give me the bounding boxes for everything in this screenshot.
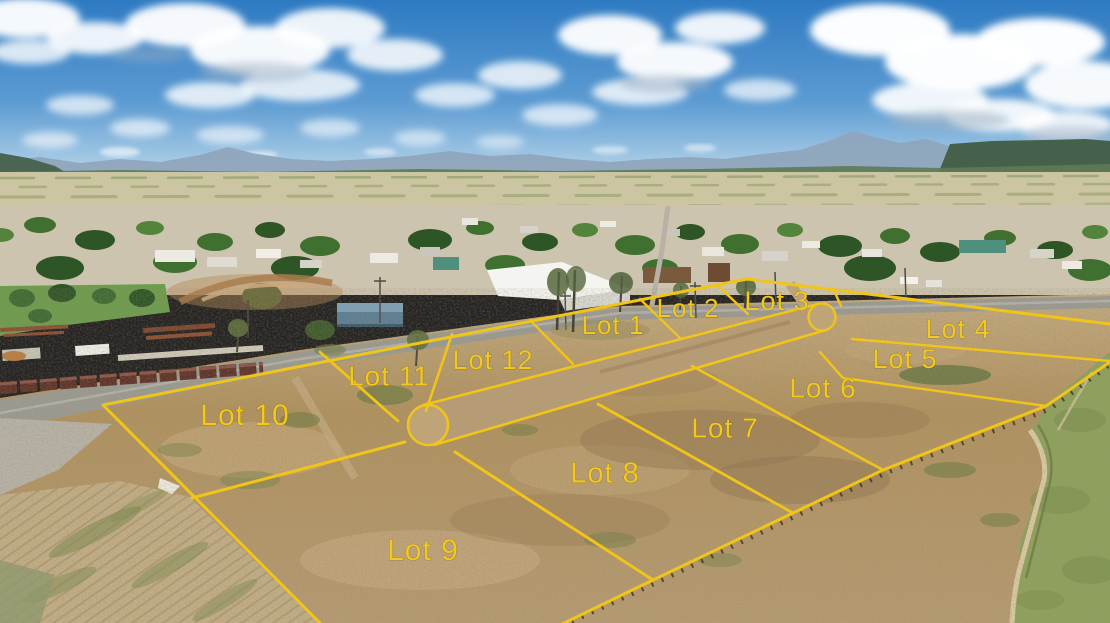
lot-label-10: Lot 10 bbox=[200, 399, 289, 432]
aerial-photo: Lot 1 Lot 2 Lot 3 Lot 4 Lot 5 Lot 6 Lot … bbox=[0, 0, 1110, 623]
lot-label-11: Lot 11 bbox=[348, 360, 430, 391]
lot-label-9: Lot 9 bbox=[387, 534, 459, 567]
lot-label-4: Lot 4 bbox=[925, 314, 990, 344]
lot-label-3: Lot 3 bbox=[744, 286, 809, 316]
lot-label-8: Lot 8 bbox=[570, 458, 640, 490]
brown-building bbox=[643, 267, 691, 283]
lot-label-2: Lot 2 bbox=[657, 293, 720, 323]
dark-brown-building bbox=[708, 263, 730, 282]
scene-canvas: Lot 1 Lot 2 Lot 3 Lot 4 Lot 5 Lot 6 Lot … bbox=[0, 0, 1110, 623]
lot-label-12: Lot 12 bbox=[452, 345, 533, 375]
teal-roof-house bbox=[433, 257, 459, 270]
lot-label-6: Lot 6 bbox=[789, 372, 856, 403]
lot-label-1: Lot 1 bbox=[582, 310, 645, 340]
lot-label-5: Lot 5 bbox=[872, 344, 937, 374]
lot-label-7: Lot 7 bbox=[691, 412, 758, 443]
teal-roof-building bbox=[959, 240, 1006, 253]
